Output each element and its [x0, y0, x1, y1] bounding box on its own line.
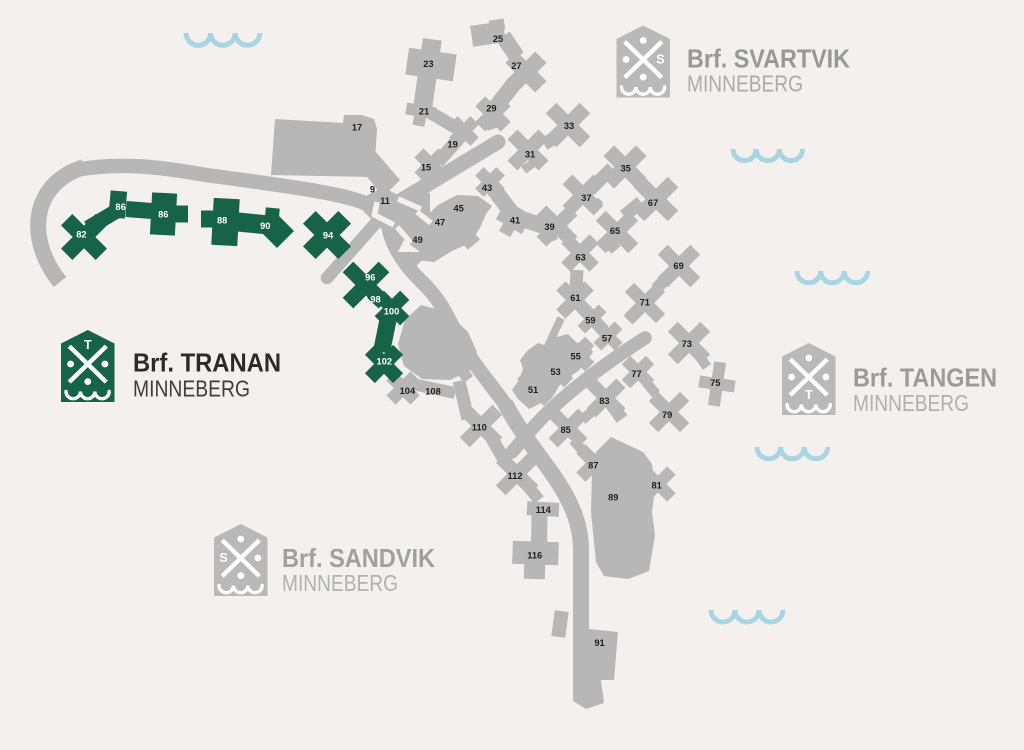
svg-text:75: 75: [710, 378, 720, 388]
svg-text:47: 47: [435, 217, 445, 227]
svg-text:96: 96: [365, 272, 375, 282]
svg-text:9: 9: [370, 184, 375, 194]
svg-text:MINNEBERG: MINNEBERG: [687, 71, 803, 97]
svg-text:49: 49: [412, 235, 422, 245]
svg-text:33: 33: [564, 121, 574, 131]
svg-text:53: 53: [550, 367, 560, 377]
svg-text:63: 63: [575, 252, 585, 262]
svg-text:86: 86: [158, 209, 168, 219]
svg-text:T: T: [805, 388, 813, 402]
svg-text:104: 104: [400, 386, 416, 396]
svg-text:86: 86: [115, 202, 125, 212]
svg-text:94: 94: [323, 230, 334, 240]
svg-text:114: 114: [536, 505, 552, 515]
svg-text:Brf. SVARTVIK: Brf. SVARTVIK: [687, 43, 850, 73]
svg-text:57: 57: [602, 333, 612, 343]
svg-text:79: 79: [662, 410, 672, 420]
svg-text:67: 67: [648, 198, 658, 208]
svg-text:81: 81: [652, 480, 662, 490]
svg-text:83: 83: [599, 396, 609, 406]
svg-text:Brf. SANDVIK: Brf. SANDVIK: [282, 543, 435, 573]
svg-text:87: 87: [588, 460, 598, 470]
svg-text:15: 15: [421, 162, 431, 172]
svg-text:108: 108: [425, 386, 441, 396]
svg-text:19: 19: [448, 139, 458, 149]
svg-text:100: 100: [384, 306, 400, 316]
svg-text:85: 85: [561, 425, 571, 435]
svg-text:61: 61: [570, 293, 580, 303]
svg-text:59: 59: [585, 316, 595, 326]
svg-text:29: 29: [486, 104, 496, 114]
svg-text:23: 23: [423, 59, 433, 69]
svg-text:89: 89: [608, 492, 618, 502]
svg-text:73: 73: [682, 339, 692, 349]
svg-text:102: 102: [377, 356, 393, 366]
svg-text:77: 77: [631, 369, 641, 379]
svg-text:Brf. TANGEN: Brf. TANGEN: [853, 363, 997, 393]
svg-text:98: 98: [370, 294, 380, 304]
svg-text:45: 45: [454, 204, 464, 214]
svg-text:112: 112: [508, 471, 523, 481]
svg-text:Brf. TRANAN: Brf. TRANAN: [133, 348, 281, 378]
svg-text:17: 17: [352, 122, 362, 132]
svg-text:88: 88: [217, 215, 227, 225]
svg-text:MINNEBERG: MINNEBERG: [853, 390, 969, 416]
svg-text:31: 31: [525, 150, 535, 160]
svg-text:25: 25: [493, 34, 503, 44]
svg-text:39: 39: [544, 222, 554, 232]
svg-text:69: 69: [673, 261, 683, 271]
svg-text:91: 91: [594, 638, 604, 648]
svg-text:35: 35: [621, 164, 631, 174]
svg-text:T: T: [84, 338, 92, 352]
svg-text:55: 55: [571, 352, 581, 362]
svg-text:MINNEBERG: MINNEBERG: [133, 376, 250, 402]
svg-text:37: 37: [581, 193, 591, 203]
svg-text:71: 71: [640, 297, 650, 307]
svg-text:43: 43: [482, 183, 492, 193]
svg-text:90: 90: [260, 221, 270, 231]
svg-text:51: 51: [528, 385, 538, 395]
svg-text:27: 27: [511, 61, 521, 71]
svg-text:11: 11: [380, 196, 390, 206]
svg-text:82: 82: [76, 229, 86, 239]
svg-text:41: 41: [510, 215, 520, 225]
svg-text:116: 116: [527, 550, 542, 560]
svg-text:S: S: [219, 551, 227, 565]
svg-text:65: 65: [610, 226, 620, 236]
svg-text:21: 21: [419, 106, 429, 116]
svg-text:110: 110: [472, 423, 487, 433]
svg-text:S: S: [656, 53, 664, 67]
svg-text:MINNEBERG: MINNEBERG: [282, 570, 398, 596]
